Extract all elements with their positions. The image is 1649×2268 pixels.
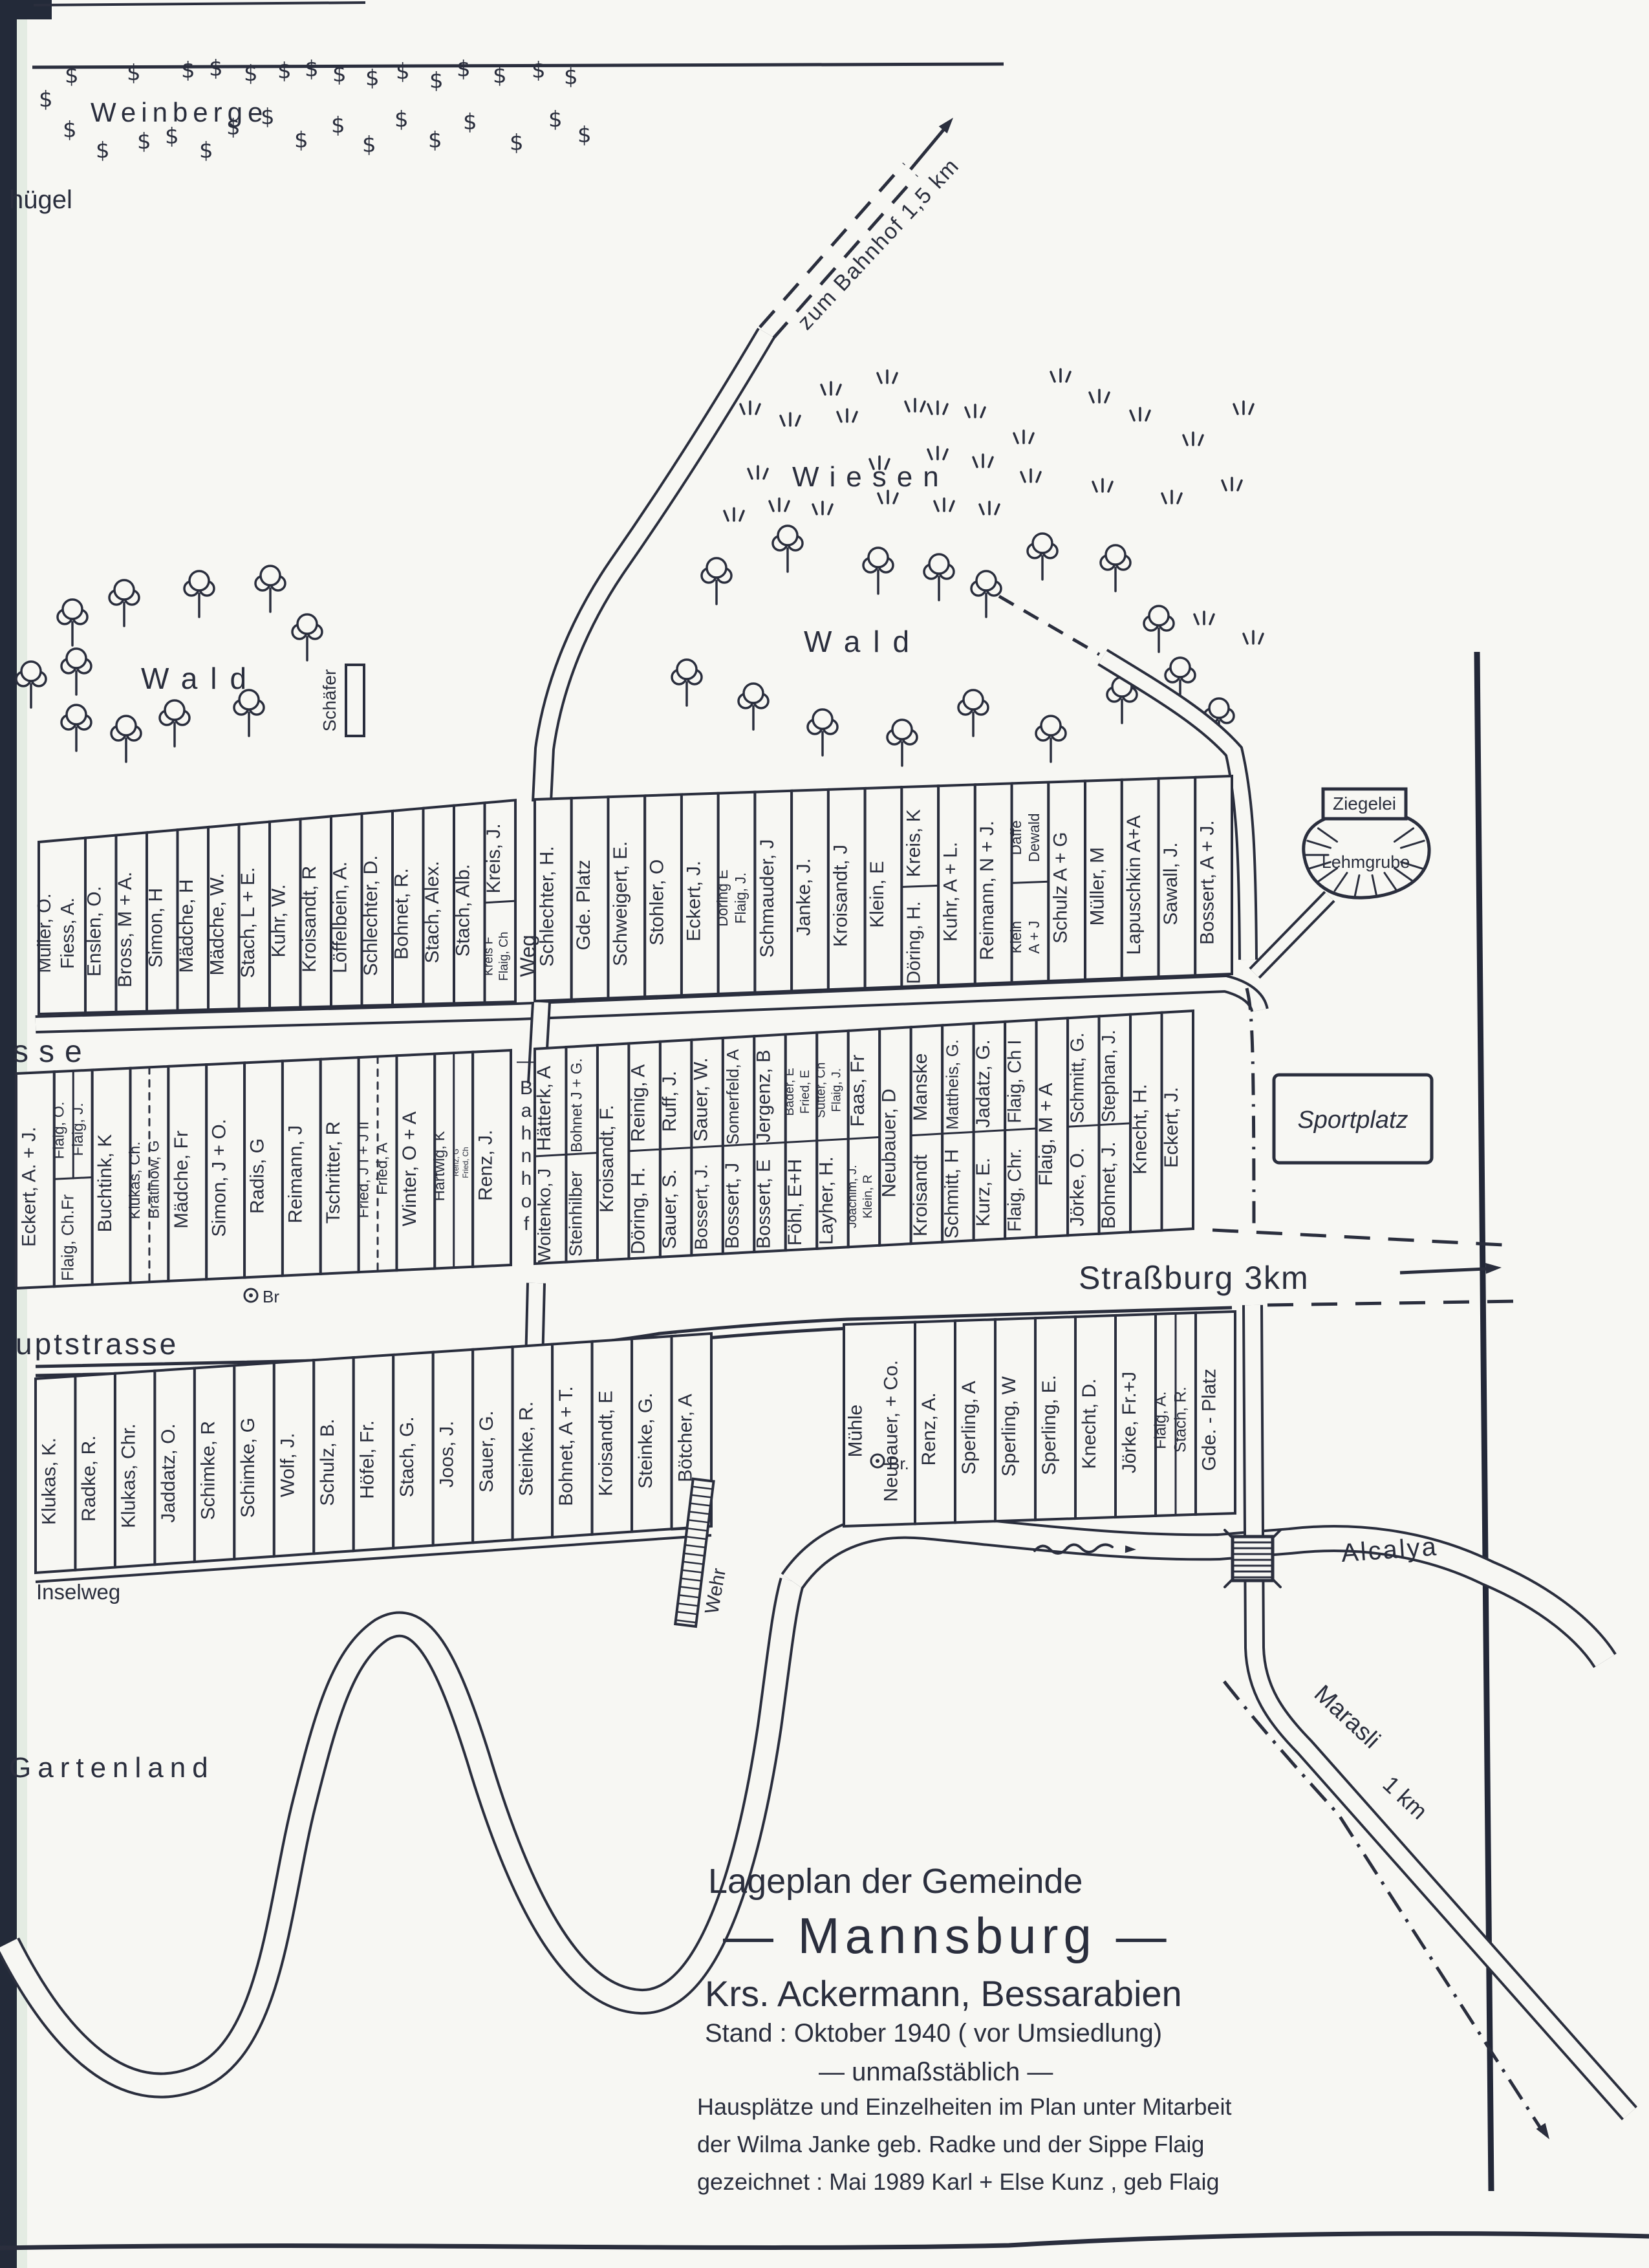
- house-plot: Klein, E: [865, 787, 902, 988]
- svg-text:Kuhr, W.: Kuhr, W.: [268, 884, 290, 957]
- house-plot: Müller, M: [1085, 780, 1122, 980]
- house-plot: Reimann, N + J.: [975, 783, 1012, 984]
- house-plot: Kroisandt, F.: [596, 1043, 629, 1260]
- house-plot: Stach, L + E.: [237, 822, 270, 1009]
- svg-text:Klukas, Chr.: Klukas, Chr.: [118, 1423, 140, 1528]
- house-plot: MühleNeubauer, + Co.: [844, 1322, 915, 1526]
- svg-text:B: B: [520, 1077, 533, 1099]
- svg-text:Mädche, Fr: Mädche, Fr: [171, 1130, 192, 1229]
- svg-text:Kuhr, A + L.: Kuhr, A + L.: [940, 842, 961, 942]
- svg-text:Döring, H.: Döring, H.: [904, 902, 925, 984]
- svg-text:Stach, Alex.: Stach, Alex.: [422, 861, 443, 963]
- svg-text:Joos, J.: Joos, J.: [436, 1421, 457, 1487]
- svg-text:Höfel, Fr.: Höfel, Fr.: [357, 1420, 378, 1499]
- svg-text:Fried, J I + J II: Fried, J I + J II: [354, 1121, 371, 1218]
- house-plot: Radis, G: [244, 1061, 283, 1278]
- svg-text:h: h: [521, 1123, 532, 1144]
- svg-text:Ziegelei: Ziegelei: [1333, 794, 1396, 814]
- svg-text:Bohnet, A + T.: Bohnet, A + T.: [555, 1386, 577, 1506]
- svg-text:Jörke, O.: Jörke, O.: [1066, 1148, 1088, 1227]
- svg-text:Faas, Fr: Faas, Fr: [847, 1055, 868, 1127]
- svg-text:Sperling, E.: Sperling, E.: [1039, 1375, 1060, 1475]
- house-plot: Mädche, W.: [207, 825, 239, 1010]
- svg-text:Mühle: Mühle: [845, 1405, 867, 1458]
- svg-text:Jörke, Fr.+J: Jörke, Fr.+J: [1119, 1372, 1140, 1474]
- svg-text:$: $: [394, 107, 409, 133]
- svg-text:Manske: Manske: [910, 1053, 931, 1121]
- svg-text:Mädche, W.: Mädche, W.: [207, 873, 228, 975]
- svg-text:Schlechter, H.: Schlechter, H.: [536, 846, 557, 967]
- svg-text:Reinig, A: Reinig, A: [628, 1064, 649, 1142]
- house-plot: Bohnet J + G.Steinhilber: [566, 1045, 598, 1262]
- svg-text:Knecht, H.: Knecht, H.: [1129, 1084, 1150, 1174]
- svg-text:$: $: [493, 63, 507, 89]
- svg-text:Schäfer: Schäfer: [319, 669, 339, 732]
- svg-text:Stohler, O: Stohler, O: [647, 859, 668, 945]
- house-plot: Flaig, A.Stach, R.: [1152, 1313, 1196, 1516]
- svg-text:Steinhilber: Steinhilber: [566, 1171, 586, 1257]
- svg-text:Eckert, J.: Eckert, J.: [683, 861, 704, 942]
- house-plot: Joos, J.: [433, 1350, 473, 1546]
- house-plot: Jaddatz, O.: [155, 1368, 194, 1565]
- svg-text:Klein: Klein: [1008, 921, 1024, 953]
- house-plot: Faas, FrJoachim, J.Klein, R: [845, 1029, 879, 1247]
- svg-text:a: a: [521, 1100, 532, 1121]
- svg-text:Schmitt, H: Schmitt, H: [941, 1149, 962, 1238]
- house-plot: Stephan, J.Bohnet, J.: [1098, 1015, 1130, 1234]
- svg-text:Weinberge: Weinberge: [91, 97, 268, 127]
- svg-text:Neubauer, + Co.: Neubauer, + Co.: [881, 1360, 902, 1502]
- svg-text:Kroisandt, E: Kroisandt, E: [595, 1390, 616, 1496]
- svg-text:—: —: [517, 1050, 536, 1072]
- house-plot: ManskeKroisandt: [910, 1025, 942, 1244]
- svg-text:Sauer, W.: Sauer, W.: [691, 1057, 712, 1141]
- svg-text:Weg: Weg: [516, 934, 539, 977]
- house-plot: Bohnet, R.: [391, 808, 424, 1005]
- svg-text:Sauer, S.: Sauer, S.: [659, 1169, 680, 1249]
- house-plot: Döring EFlaig, J.: [714, 792, 755, 994]
- svg-text:Simon, J + O.: Simon, J + O.: [209, 1119, 230, 1237]
- svg-text:Schweigert, E.: Schweigert, E.: [610, 841, 631, 966]
- svg-text:Janke, J.: Janke, J.: [793, 858, 815, 936]
- house-plot: Bossert, A + J.: [1195, 776, 1232, 975]
- house-plot: Sawall, J.: [1159, 777, 1196, 977]
- svg-text:Bohnet J + G.: Bohnet J + G.: [569, 1058, 586, 1152]
- svg-text:Sawall, J.: Sawall, J.: [1160, 842, 1181, 925]
- svg-text:Bohnet, J.: Bohnet, J.: [1098, 1141, 1119, 1229]
- svg-text:Schmitt, G.: Schmitt, G.: [1067, 1033, 1088, 1123]
- house-plot: Sperling, E.: [1035, 1317, 1075, 1520]
- svg-text:Flaig, J.: Flaig, J.: [732, 872, 749, 923]
- svg-text:$: $: [137, 129, 151, 155]
- svg-text:Renz, A.: Renz, A.: [918, 1392, 940, 1465]
- house-plot: Gde. - Platz: [1196, 1312, 1235, 1515]
- house-plot: Bader, EFried, EFöhl, E+H: [782, 1033, 817, 1251]
- svg-text:Kurz, E.: Kurz, E.: [973, 1158, 994, 1227]
- svg-text:A + J: A + J: [1026, 921, 1042, 954]
- svg-text:Winter, O + A: Winter, O + A: [399, 1112, 420, 1227]
- house-plot: Kreis, KDöring, H.: [901, 786, 938, 987]
- house-plot: Schmitt, G.Jörke, O.: [1066, 1016, 1099, 1235]
- svg-text:Kreis, K: Kreis, K: [903, 809, 925, 877]
- svg-text:Klukas, K.: Klukas, K.: [39, 1438, 60, 1525]
- svg-text:$: $: [63, 117, 77, 143]
- house-plot: Klukas, Chr.: [115, 1371, 155, 1568]
- svg-text:Neubauer, D: Neubauer, D: [878, 1088, 900, 1197]
- svg-text:Bötcher, A: Bötcher, A: [674, 1394, 696, 1482]
- svg-text:Hätterk, A: Hätterk, A: [533, 1066, 555, 1151]
- svg-text:$: $: [199, 138, 213, 164]
- house-plot: Löffelbein, A.: [330, 814, 362, 1006]
- svg-text:$: $: [127, 60, 141, 86]
- svg-text:Wald: Wald: [804, 625, 922, 658]
- svg-text:Kroisandt, F.: Kroisandt, F.: [596, 1105, 618, 1213]
- svg-text:Bossert, E: Bossert, E: [753, 1160, 775, 1249]
- svg-text:Buchtink, K: Buchtink, K: [94, 1134, 116, 1233]
- house-plot: Mattheis, G.Schmitt, H: [941, 1024, 973, 1242]
- house-plot: Wolf, J.: [274, 1360, 314, 1556]
- house-plot: Höfel, Fr.: [354, 1355, 393, 1551]
- house-plot: Reimann, J: [283, 1059, 321, 1276]
- house-plot: Hätterk, AWoitenko, J: [533, 1047, 566, 1264]
- svg-text:Stephan, J.: Stephan, J.: [1099, 1030, 1119, 1123]
- house-plot: Schimke, R: [195, 1365, 234, 1562]
- svg-text:Wiesen: Wiesen: [792, 461, 949, 493]
- house-row-2-left: Eckert, A. + J.Flaig, O.Flaig, J.Flaig, …: [16, 1050, 511, 1288]
- house-plot: Eckert, J.: [1161, 1011, 1193, 1231]
- svg-text:Lehmgrube: Lehmgrube: [1322, 852, 1410, 872]
- svg-text:$: $: [577, 122, 592, 148]
- svg-text:Gartenland: Gartenland: [9, 1752, 215, 1784]
- house-plot: Stach, Alb.: [453, 803, 485, 1003]
- svg-text:$: $: [332, 61, 347, 87]
- svg-text:Woitenko, J: Woitenko, J: [534, 1169, 554, 1263]
- house-plot: Kroisandt, J: [828, 788, 865, 989]
- svg-text:Sauer, G.: Sauer, G.: [476, 1410, 497, 1493]
- svg-text:Bross, M + A.: Bross, M + A.: [114, 872, 136, 988]
- house-plot: Sutter, ChFlaig, J.Layher, H.: [814, 1031, 848, 1249]
- svg-text:$: $: [463, 109, 477, 135]
- house-plot: Knecht, H.: [1129, 1013, 1161, 1232]
- house-plot: Sauer, G.: [473, 1347, 512, 1543]
- house-plot: Schlechter, H.: [535, 798, 572, 1001]
- svg-text:Fried, A: Fried, A: [374, 1142, 391, 1194]
- house-plot: Tschritter, R: [321, 1057, 359, 1274]
- svg-text:Bossert, J: Bossert, J: [722, 1163, 743, 1249]
- house-plot: Klukas, K.: [36, 1376, 75, 1573]
- svg-text:$: $: [365, 65, 380, 91]
- svg-text:$: $: [362, 132, 376, 158]
- house-plot: Stach, Alex.: [422, 806, 454, 1004]
- svg-text:Br.: Br.: [889, 1454, 909, 1473]
- svg-text:Fried, E: Fried, E: [798, 1070, 812, 1114]
- svg-text:Bossert, A + J.: Bossert, A + J.: [1197, 820, 1218, 945]
- map-canvas: $$$$$$$$$$$$$$$$$$$$$$$$$$$$$$$$Müller, …: [0, 0, 1649, 2268]
- house-plot: Janke, J.: [792, 790, 828, 991]
- house-plot: Stohler, O: [645, 794, 682, 997]
- svg-text:$: $: [39, 87, 53, 113]
- svg-text:Eckert, A. + J.: Eckert, A. + J.: [18, 1127, 39, 1247]
- house-plot: Sperling, W: [995, 1318, 1035, 1521]
- svg-text:Bossert, J.: Bossert, J.: [691, 1164, 711, 1250]
- house-plot: Gde. Platz: [572, 797, 609, 999]
- house-plot: Schweigert, E.: [608, 795, 645, 998]
- svg-text:Klukas, Ch.: Klukas, Ch.: [126, 1141, 143, 1219]
- svg-text:Enslen, O.: Enslen, O.: [84, 886, 105, 977]
- house-plot: Reinig, ADöring, H.: [628, 1042, 660, 1259]
- svg-text:Flaig, Ch I: Flaig, Ch I: [1004, 1040, 1025, 1123]
- house-plot: Kroisandt, E: [592, 1339, 632, 1534]
- svg-text:Flaig, M + A: Flaig, M + A: [1035, 1083, 1057, 1185]
- house-plot: Kuhr, A + L.: [938, 784, 975, 985]
- svg-text:Sperling, W: Sperling, W: [998, 1376, 1020, 1476]
- svg-text:n: n: [521, 1145, 532, 1167]
- svg-text:Fiess, A.: Fiess, A.: [58, 898, 78, 969]
- svg-text:$: $: [209, 56, 223, 81]
- house-plot: Lapuschkin A+A: [1122, 779, 1159, 978]
- house-plot: Ruff, J.Sauer, S.: [659, 1040, 691, 1257]
- svg-text:$: $: [428, 127, 442, 153]
- svg-text:Gde. Platz: Gde. Platz: [573, 859, 594, 950]
- svg-text:$: $: [457, 56, 471, 82]
- svg-text:Schulz A + G: Schulz A + G: [1050, 832, 1072, 944]
- house-plot: Mädche, H: [176, 827, 208, 1011]
- svg-text:Eckert, J.: Eckert, J.: [1161, 1087, 1182, 1168]
- house-plot: Bohnet, A + T.: [552, 1341, 592, 1537]
- svg-text:Layher, H.: Layher, H.: [816, 1156, 837, 1245]
- svg-text:Jergenz, B: Jergenz, B: [753, 1050, 775, 1142]
- house-plot: Schlechter, D.: [360, 811, 393, 1006]
- svg-text:o: o: [521, 1191, 532, 1212]
- svg-text:Renz, J.: Renz, J.: [475, 1130, 497, 1201]
- svg-text:Schmauder, J: Schmauder, J: [757, 839, 778, 957]
- svg-text:Steinke, R.: Steinke, R.: [515, 1401, 537, 1496]
- svg-text:Stach, G.: Stach, G.: [396, 1416, 418, 1497]
- house-plot: Radke, R.: [75, 1374, 114, 1570]
- svg-text:Tschritter, R: Tschritter, R: [323, 1121, 344, 1224]
- svg-text:Stach, Alb.: Stach, Alb.: [453, 864, 474, 956]
- house-plot: Neubauer, D: [878, 1027, 911, 1246]
- svg-text:$: $: [244, 61, 258, 87]
- house-plot: Simon, H: [145, 830, 178, 1011]
- svg-text:Stach, L + E.: Stach, L + E.: [237, 867, 259, 978]
- svg-text:Flaig, J.: Flaig, J.: [830, 1068, 844, 1112]
- house-plot: Jergenz, BBossert, E: [753, 1034, 786, 1252]
- house-plot: Flaig, Ch IFlaig, Chr.: [1004, 1020, 1036, 1238]
- svg-text:Jaddatz, O.: Jaddatz, O.: [158, 1423, 179, 1522]
- house-plot: Hartwig, KRenz, GFried, Ch: [431, 1052, 473, 1269]
- svg-text:Inselweg: Inselweg: [36, 1580, 120, 1604]
- svg-text:Löffelbein, A.: Löffelbein, A.: [330, 861, 351, 973]
- svg-text:Schimke, R: Schimke, R: [198, 1421, 219, 1520]
- svg-text:Reimann, N + J.: Reimann, N + J.: [976, 821, 998, 960]
- svg-text:Straßburg 3km: Straßburg 3km: [1079, 1260, 1309, 1296]
- house-plot: Stach, G.: [393, 1352, 433, 1548]
- svg-text:Daffe: Daffe: [1008, 820, 1024, 855]
- bridge: [1225, 1530, 1280, 1587]
- svg-text:$: $: [564, 64, 578, 90]
- svg-text:Hartwig, K: Hartwig, K: [431, 1131, 447, 1202]
- svg-text:Bratinow, G: Bratinow, G: [145, 1140, 162, 1219]
- svg-text:Föhl, E+H: Föhl, E+H: [784, 1159, 806, 1246]
- svg-text:hügel: hügel: [9, 186, 72, 214]
- house-plot: Enslen, O.: [84, 836, 116, 1013]
- svg-text:Flaig, J.: Flaig, J.: [69, 1103, 86, 1156]
- house-plot: Knecht, D.: [1075, 1315, 1115, 1518]
- house-plot: Müller, O.Fiess, A.: [34, 838, 85, 1014]
- house-plot: Renz, A.: [915, 1321, 955, 1524]
- svg-text:Sportplatz: Sportplatz: [1297, 1107, 1408, 1134]
- svg-text:Kroisandt, R: Kroisandt, R: [299, 866, 320, 973]
- svg-text:Kreis, J.: Kreis, J.: [483, 823, 504, 893]
- svg-text:$: $: [277, 58, 292, 84]
- house-plot: Jadatz, G.Kurz, E.: [973, 1022, 1005, 1240]
- svg-text:Stach, R.: Stach, R.: [1172, 1387, 1190, 1453]
- svg-text:Schulz, B.: Schulz, B.: [317, 1419, 338, 1506]
- house-plot: Flaig, M + A: [1035, 1018, 1068, 1237]
- house-plot: Schmauder, J: [755, 791, 792, 993]
- svg-text:Wald: Wald: [141, 662, 259, 695]
- mill-row: MühleNeubauer, + Co.Renz, A.Sperling, AS…: [844, 1312, 1235, 1526]
- svg-text:Lapuschkin A+A: Lapuschkin A+A: [1123, 815, 1145, 955]
- svg-text:Schimke, G: Schimke, G: [237, 1418, 259, 1518]
- svg-text:$: $: [532, 58, 546, 83]
- svg-text:$: $: [548, 107, 563, 133]
- house-plot: Schimke, G: [234, 1363, 274, 1559]
- svg-text:h: h: [521, 1168, 532, 1189]
- svg-text:Flaig, Chr.: Flaig, Chr.: [1004, 1149, 1025, 1232]
- house-plot: Schulz, B.: [314, 1357, 353, 1553]
- svg-text:Knecht, D.: Knecht, D.: [1079, 1378, 1100, 1469]
- svg-text:Mädche, H: Mädche, H: [176, 879, 197, 973]
- house-plot: Schulz A + G: [1048, 781, 1085, 981]
- svg-text:Kroisandt, J: Kroisandt, J: [830, 845, 851, 947]
- svg-text:sse: sse: [13, 1035, 92, 1069]
- house-plot: Somerfeld, ABossert, J: [722, 1036, 754, 1253]
- svg-text:Fried, Ch: Fried, Ch: [462, 1147, 470, 1178]
- house-row-1-right: Schlechter, H.Gde. PlatzSchweigert, E.St…: [535, 776, 1232, 1001]
- svg-text:$: $: [96, 138, 110, 164]
- house-plot: Eckert, A. + J.: [16, 1072, 54, 1288]
- svg-text:f: f: [524, 1213, 530, 1235]
- house-plot: Steinke, G.: [632, 1336, 671, 1531]
- svg-text:Flaig, Ch: Flaig, Ch: [497, 932, 511, 981]
- house-plot: Fried, J I + J IIFried, A: [354, 1055, 396, 1272]
- house-plot: Winter, O + A: [396, 1054, 435, 1271]
- svg-text:Reimann, J: Reimann, J: [285, 1125, 306, 1224]
- svg-text:Joachim, J.: Joachim, J.: [845, 1165, 859, 1228]
- svg-text:Müller, O.: Müller, O.: [34, 893, 55, 973]
- house-plot: Sauer, W.Bossert, J.: [691, 1038, 723, 1255]
- svg-text:Müller, M: Müller, M: [1086, 847, 1108, 926]
- svg-text:Jadatz, G.: Jadatz, G.: [973, 1039, 994, 1128]
- svg-text:Flaig, Ch.Fr: Flaig, Ch.Fr: [59, 1194, 77, 1280]
- svg-text:Bohnet, R.: Bohnet, R.: [391, 868, 413, 960]
- house-plot: Mädche, Fr: [168, 1064, 206, 1281]
- svg-text:Flaig, A.: Flaig, A.: [1152, 1391, 1170, 1449]
- svg-text:Kreis F: Kreis F: [482, 937, 495, 976]
- house-plot: Steinke, R.: [513, 1344, 552, 1540]
- house-row-2-right: Hätterk, AWoitenko, JBohnet J + G.Steinh…: [533, 1011, 1193, 1264]
- svg-text:Klein, E: Klein, E: [867, 861, 888, 927]
- svg-text:Renz, G: Renz, G: [452, 1149, 460, 1176]
- house-plot: Renz, J.: [473, 1050, 511, 1267]
- house-plot: Eckert, J.: [682, 794, 718, 996]
- house-plot: Sperling, A: [955, 1319, 995, 1522]
- house-plot: Flaig, O.Flaig, J.Flaig, Ch.Fr: [50, 1070, 92, 1286]
- svg-text:Bader, E: Bader, E: [782, 1068, 797, 1116]
- svg-text:Schlechter, D.: Schlechter, D.: [360, 855, 382, 976]
- house-plot: Jörke, Fr.+J: [1115, 1314, 1156, 1517]
- svg-text:$: $: [294, 127, 308, 153]
- svg-text:Somerfeld, A: Somerfeld, A: [724, 1048, 742, 1144]
- svg-text:Kroisandt: Kroisandt: [910, 1154, 931, 1237]
- svg-text:Steinke, G.: Steinke, G.: [635, 1393, 656, 1489]
- svg-text:$: $: [181, 58, 195, 83]
- svg-text:$: $: [65, 63, 79, 89]
- svg-text:Sutter, Ch: Sutter, Ch: [814, 1063, 828, 1118]
- house-plot: Kroisandt, R: [299, 816, 331, 1007]
- svg-text:Klein, R: Klein, R: [861, 1174, 875, 1218]
- house-plot: Kuhr, W.: [268, 819, 301, 1008]
- house-plot: Buchtink, K: [92, 1068, 131, 1285]
- svg-text:Br: Br: [263, 1287, 279, 1306]
- svg-text:$: $: [305, 56, 319, 82]
- svg-text:Ruff, J.: Ruff, J.: [659, 1071, 680, 1132]
- svg-text:$: $: [331, 113, 345, 138]
- svg-text:Radis, G: Radis, G: [247, 1138, 268, 1214]
- scanned-village-map: $$$$$$$$$$$$$$$$$$$$$$$$$$$$$$$$Müller, …: [0, 0, 1649, 2268]
- svg-text:Simon, H: Simon, H: [145, 888, 167, 967]
- house-plot: Bross, M + A.: [114, 832, 147, 1012]
- svg-text:Wolf, J.: Wolf, J.: [277, 1433, 299, 1497]
- svg-text:$: $: [396, 59, 410, 85]
- svg-text:Mattheis, G.: Mattheis, G.: [943, 1039, 962, 1130]
- svg-text:Sperling, A: Sperling, A: [958, 1381, 980, 1474]
- svg-text:Döring E: Döring E: [714, 870, 731, 927]
- svg-text:$: $: [429, 68, 444, 94]
- house-plot: Simon, J + O.: [206, 1063, 244, 1279]
- house-plot: Klukas, Ch.Bratinow, G: [126, 1066, 168, 1283]
- svg-text:Radke, R.: Radke, R.: [78, 1436, 100, 1522]
- svg-text:Döring, H.: Döring, H.: [628, 1167, 649, 1255]
- house-plot: Kreis, J.Kreis FFlaig, Ch: [482, 800, 515, 1002]
- svg-text:$: $: [510, 130, 524, 156]
- svg-text:uptstrasse: uptstrasse: [16, 1327, 178, 1361]
- svg-text:Flaig, O.: Flaig, O.: [50, 1101, 67, 1159]
- house-plot: DaffeDewaldKleinA + J: [1008, 782, 1049, 982]
- svg-text:Gde. - Platz: Gde. - Platz: [1199, 1368, 1220, 1471]
- svg-text:$: $: [165, 124, 179, 149]
- svg-text:Dewald: Dewald: [1026, 813, 1042, 862]
